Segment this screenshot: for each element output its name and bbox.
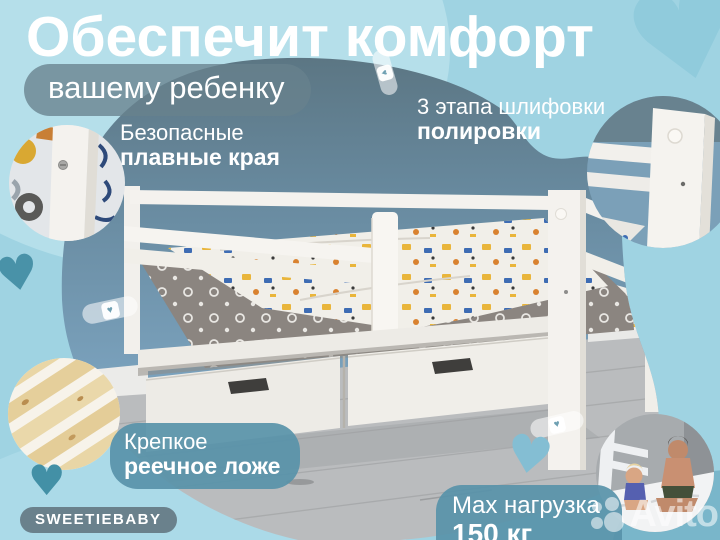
avito-wordmark: Avito — [629, 493, 718, 536]
avito-logo-icon — [587, 495, 627, 535]
heart-icon: ♥ — [28, 460, 66, 502]
avito-watermark: Avito — [587, 493, 718, 536]
inset-polished-post-photo — [587, 96, 720, 248]
feature-slatted-base: Крепкое реечное ложе — [110, 423, 300, 489]
page-subtitle: вашему ребенку — [24, 64, 311, 116]
page-title: Обеспечит комфорт — [26, 4, 706, 70]
promo-poster: ♥ — [0, 0, 720, 540]
heart-icon: ♥ — [502, 427, 556, 486]
feature-safe-edges: Безопасные плавные края — [120, 121, 280, 170]
inset-wooden-slats-photo — [8, 358, 120, 470]
brand-badge: SWEETIEBABY — [20, 507, 177, 533]
inset-rounded-corner-photo — [9, 125, 125, 241]
feature-polishing: 3 этапа шлифовки полировки — [417, 95, 605, 144]
